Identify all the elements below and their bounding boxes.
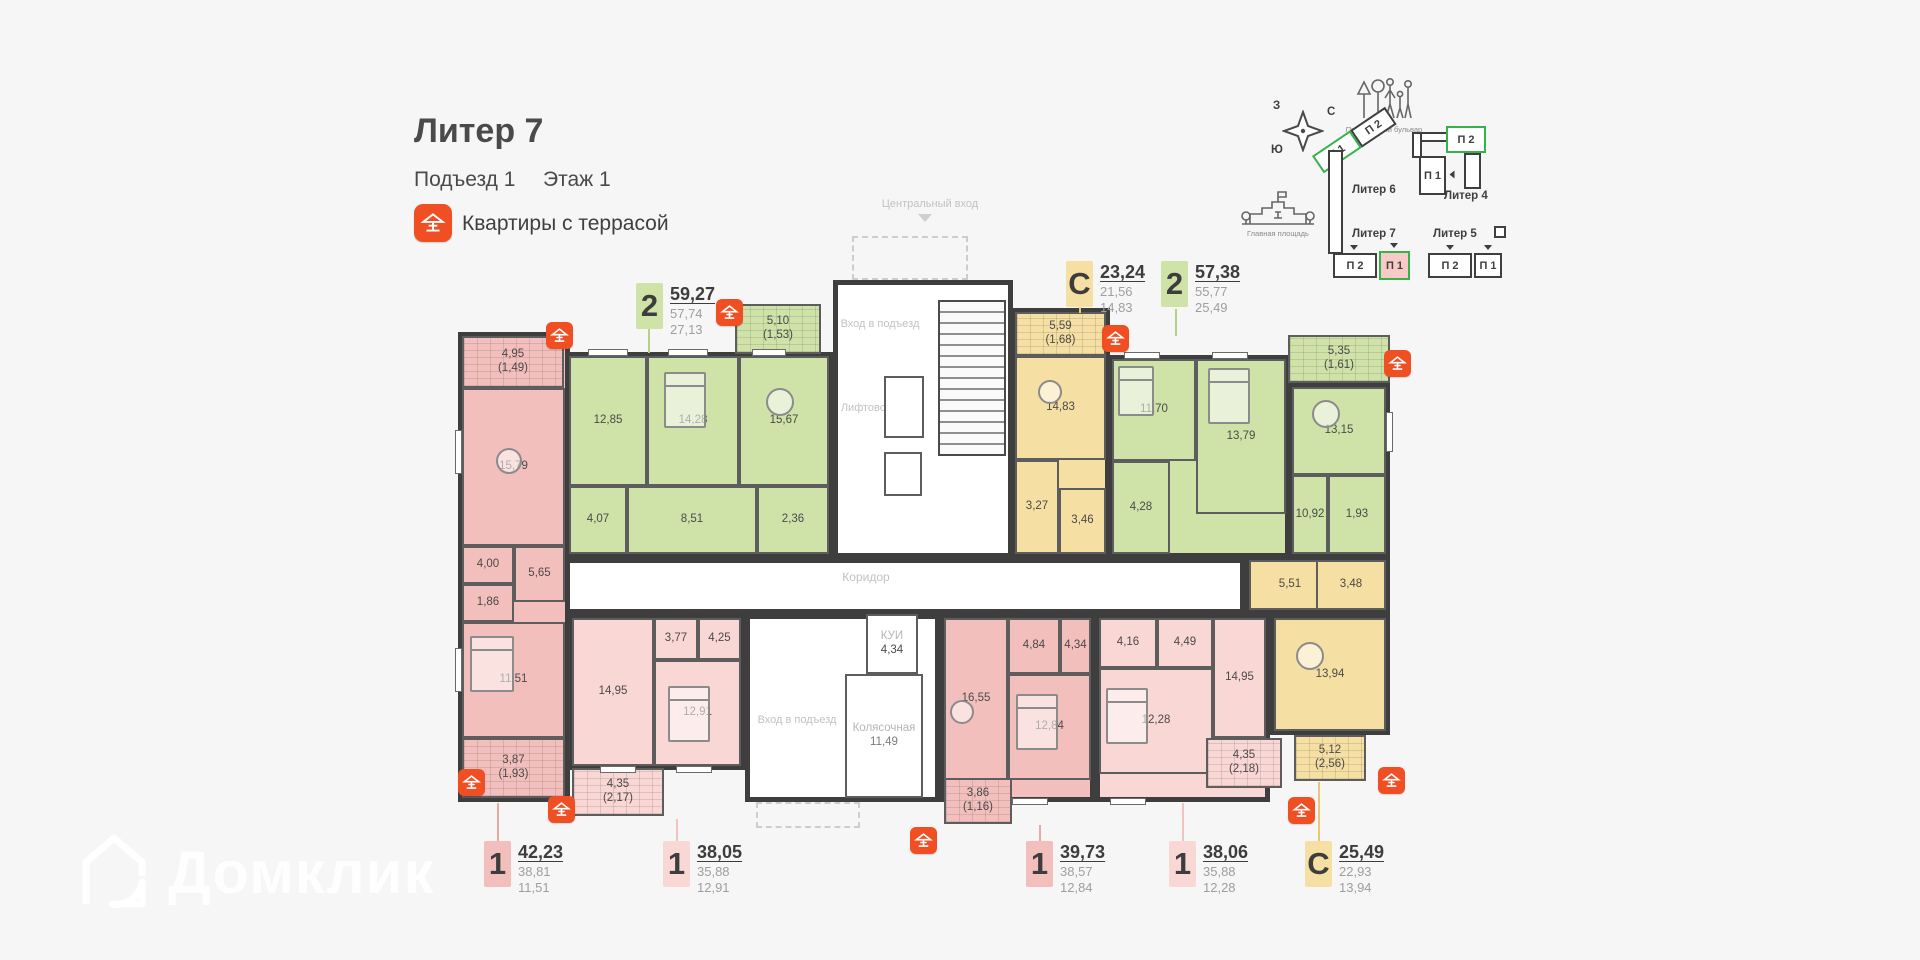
minimap-liter5-p1-arrow-icon <box>1484 245 1492 250</box>
room: 14,95 <box>572 618 654 766</box>
floor-label: Этаж 1 <box>543 168 611 192</box>
minimap-liter4-p1[interactable]: П 1 <box>1419 156 1446 195</box>
terrace-marker-icon <box>910 827 937 854</box>
terrace-room: 5,59(1,68) <box>1015 312 1106 356</box>
window <box>1012 798 1048 805</box>
apartment-badge-2-59[interactable]: 2 59,27 57,74 27,13 <box>636 283 715 338</box>
minimap-liter5-p1[interactable]: П 1 <box>1474 253 1502 278</box>
apartment-badge-s-25[interactable]: С 25,4922,9313,94 <box>1305 841 1384 896</box>
kui-area: 4,34 <box>881 644 903 658</box>
minimap-liter6-label: Литер 6 <box>1352 184 1396 196</box>
room-area-extra: (1,49) <box>498 362 528 376</box>
minimap-liter4-arrow-icon <box>1450 171 1455 179</box>
corridor-block <box>565 558 1245 614</box>
room: 13,15 <box>1292 387 1386 475</box>
room: 15,67 <box>739 356 829 486</box>
room: 4,00 <box>462 546 514 584</box>
entrance-canopy-bottom <box>756 802 860 828</box>
apartment-type: 1 <box>1169 841 1196 887</box>
room: 14,83 <box>1015 356 1106 460</box>
room-area: 4,95 <box>502 348 524 362</box>
minimap-liter7-building <box>1328 150 1343 254</box>
terrace-marker-icon <box>1384 350 1411 377</box>
room: 2,36 <box>757 486 829 554</box>
compass-west: З <box>1273 100 1280 112</box>
minimap-liter7-p2-arrow-icon <box>1350 245 1358 250</box>
window <box>600 766 636 773</box>
badge-connector <box>1318 782 1320 841</box>
minimap-liter7-label: Литер 7 <box>1352 228 1396 240</box>
apartment-badge-2-57[interactable]: 2 57,3855,7725,49 <box>1161 261 1240 316</box>
entrance-bottom-label: Вход в подъезд <box>742 714 852 726</box>
terrace-room: 5,10(1,53) <box>735 304 821 354</box>
bed-icon <box>668 686 710 742</box>
floorplan-page: { "header": { "title": "Литер 7", "entra… <box>0 0 1920 960</box>
room: 3,77 <box>654 618 698 660</box>
minimap-liter4-wing3 <box>1464 153 1481 189</box>
compass-south: Ю <box>1271 144 1283 156</box>
terrace-legend-icon <box>414 204 452 242</box>
bed-icon <box>1016 694 1058 750</box>
table-icon <box>1038 380 1062 404</box>
room: 5,65 <box>514 546 565 602</box>
minimap-liter7-p1-arrow-icon <box>1390 243 1398 248</box>
apartment-type: С <box>1305 841 1332 887</box>
apartment-badge-1-42[interactable]: 1 42,2338,8111,51 <box>484 841 563 896</box>
room: 8,51 <box>627 486 757 554</box>
corridor-label: Коридор <box>806 570 926 584</box>
bed-icon <box>1106 688 1148 744</box>
window <box>1124 352 1160 359</box>
table-icon <box>1296 642 1324 670</box>
entrance-top-label: Вход в подъезд <box>820 318 940 330</box>
room: 16,55 <box>944 618 1008 780</box>
terrace-room: 5,12(2,56) <box>1294 735 1366 781</box>
room: 1,93 <box>1328 475 1386 554</box>
kui-label: КУИ <box>881 630 903 644</box>
apartment-badge-s-23[interactable]: С 23,2421,5614,83 <box>1066 261 1145 316</box>
window <box>1110 798 1146 805</box>
minimap-liter4-label: Литер 4 <box>1444 190 1488 202</box>
badge-connector <box>1182 803 1184 841</box>
window <box>1386 412 1393 452</box>
bed-icon <box>1208 368 1250 424</box>
room: 3,27 <box>1015 460 1059 554</box>
elevator-shaft <box>884 452 922 496</box>
elevator-shaft <box>884 376 924 438</box>
window <box>676 766 712 773</box>
compass-icon <box>1282 110 1324 152</box>
terrace-legend-text: Квартиры с террасой <box>462 212 669 236</box>
bed-icon <box>470 636 514 692</box>
total-area: 59,27 <box>670 283 715 306</box>
staircase <box>938 300 1006 456</box>
terrace-marker-icon <box>546 322 573 349</box>
terrace-room: 3,86(1,16) <box>944 778 1012 824</box>
room: 3,46 <box>1059 488 1106 554</box>
apartment-type: 1 <box>484 841 511 887</box>
room: 4,16 <box>1099 618 1157 668</box>
stroller-label: Колясочная <box>853 722 916 736</box>
badge-connector <box>497 803 499 841</box>
central-entrance-label: Центральный вход <box>870 198 990 210</box>
table-icon <box>766 388 794 416</box>
apartment-type: 1 <box>663 841 690 887</box>
window <box>455 648 462 692</box>
minimap-liter4-wing2 <box>1412 132 1422 158</box>
window <box>588 349 628 356</box>
apartment-type: 2 <box>636 283 663 329</box>
extra-area: 27,13 <box>670 322 715 338</box>
room: 4,84 <box>1008 618 1060 674</box>
domclick-logo-icon <box>72 826 156 910</box>
room: 4,49 <box>1157 618 1213 668</box>
room: 3,48 <box>1316 560 1386 610</box>
minimap-liter5-label: Литер 5 <box>1433 228 1477 240</box>
stroller-area: 11,49 <box>870 736 898 750</box>
living-area: 57,74 <box>670 306 715 322</box>
room: 4,25 <box>698 618 741 660</box>
terrace-room: 4,35(2,18) <box>1206 738 1282 788</box>
page-title: Литер 7 <box>414 112 543 151</box>
minimap-liter5-building <box>1494 226 1506 238</box>
terrace-marker-icon <box>458 769 485 796</box>
terrace-marker-icon <box>548 796 575 823</box>
terrace-room: 5,35(1,61) <box>1288 335 1390 383</box>
table-icon <box>950 700 974 724</box>
compass-north: С <box>1327 106 1335 118</box>
room: 1,86 <box>462 584 514 622</box>
table-icon <box>496 448 522 474</box>
window <box>1212 352 1248 359</box>
apartment-badge-1-3805[interactable]: 1 38,0535,8812,91 <box>663 841 742 896</box>
terrace-icon <box>420 210 446 236</box>
apartment-type: С <box>1066 261 1093 307</box>
terrace-marker-icon <box>1288 797 1315 824</box>
bed-icon <box>664 372 706 428</box>
entrance-canopy <box>852 236 968 280</box>
badge-connector <box>676 819 678 841</box>
terrace-marker-icon <box>716 299 743 326</box>
room: 4,07 <box>569 486 627 554</box>
main-square-icon <box>1238 188 1318 228</box>
room: 10,92 <box>1292 475 1328 554</box>
bed-icon <box>1118 366 1154 416</box>
minimap-liter4-p2[interactable]: П 2 <box>1446 126 1486 153</box>
terrace-marker-icon <box>1102 325 1129 352</box>
entrance-label: Подъезд 1 <box>414 168 515 192</box>
room: 12,85 <box>569 356 647 486</box>
main-square-label: Главная площадь <box>1240 230 1316 238</box>
window <box>668 349 708 356</box>
central-entrance-arrow-icon <box>918 214 932 222</box>
stroller-room: Колясочная 11,49 <box>845 674 923 798</box>
window <box>752 349 786 356</box>
room: 4,28 <box>1112 461 1170 554</box>
kui-room: КУИ 4,34 <box>866 614 918 674</box>
apartment-type: 2 <box>1161 261 1188 307</box>
minimap-liter5-p2[interactable]: П 2 <box>1428 253 1472 278</box>
minimap-liter5-p2-arrow-icon <box>1446 245 1454 250</box>
minimap-liter7-p2[interactable]: П 2 <box>1333 253 1377 278</box>
badge-connector <box>1039 825 1041 841</box>
room: 14,95 <box>1213 618 1266 738</box>
room: 4,34 <box>1060 618 1091 674</box>
room: 13,94 <box>1274 618 1386 731</box>
terrace-marker-icon <box>1378 767 1405 794</box>
terrace-room: 4,35(2,17) <box>572 768 664 816</box>
window <box>455 430 462 474</box>
apartment-type: 1 <box>1026 841 1053 887</box>
watermark-text: Домклик <box>168 838 435 907</box>
apartment-badge-1-3973[interactable]: 1 39,7338,5712,84 <box>1026 841 1105 896</box>
table-icon <box>1312 400 1340 428</box>
apartment-badge-1-3806[interactable]: 1 38,0635,8812,28 <box>1169 841 1248 896</box>
minimap-liter7-p1-selected[interactable]: П 1 <box>1379 251 1410 280</box>
